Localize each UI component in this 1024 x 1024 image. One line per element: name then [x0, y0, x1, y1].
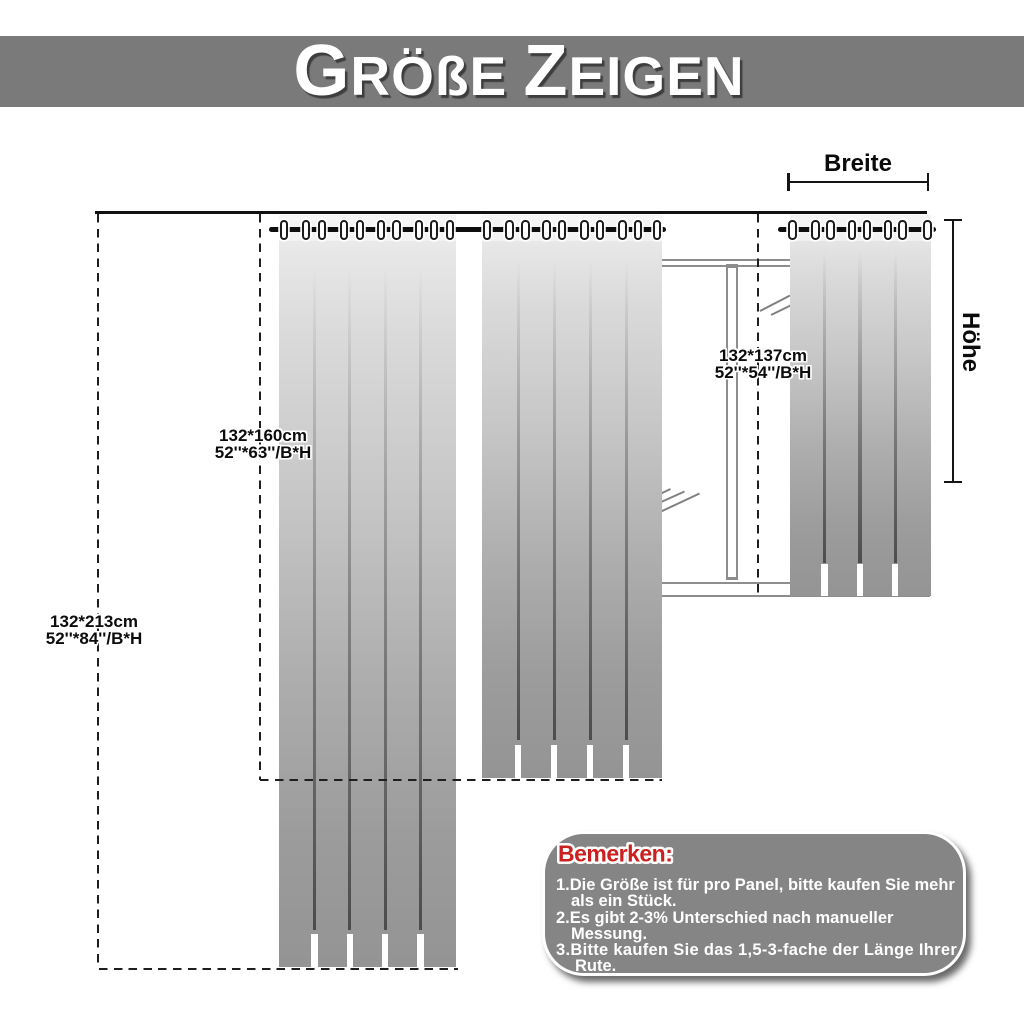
svg-text:Bemerken:: Bemerken:	[558, 841, 672, 867]
